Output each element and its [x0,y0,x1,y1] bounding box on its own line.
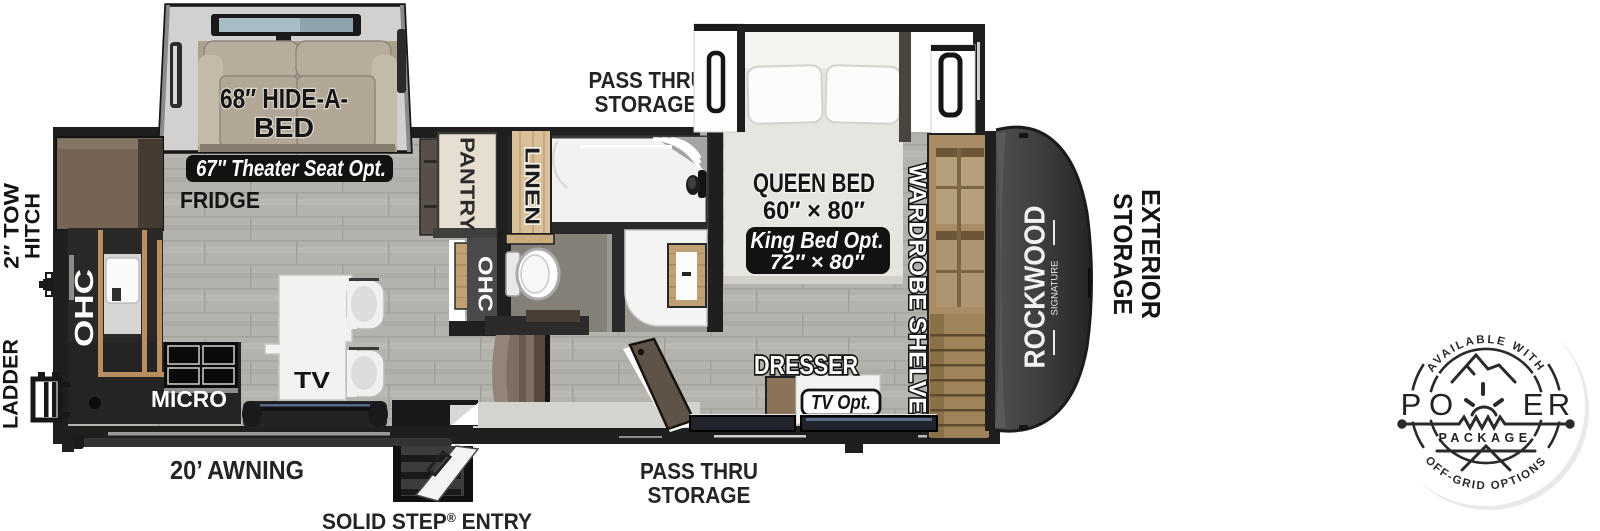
svg-text:SIGNATURE: SIGNATURE [1049,261,1059,316]
svg-text:68″ HIDE-A-: 68″ HIDE-A- [220,83,348,114]
svg-text:LADDER: LADDER [0,339,23,429]
svg-text:72″ × 80″: 72″ × 80″ [770,251,865,274]
svg-text:60″ × 80″: 60″ × 80″ [763,197,865,225]
svg-text:R: R [1548,387,1570,422]
svg-text:DRESSER: DRESSER [754,350,858,380]
svg-text:OHC: OHC [474,256,496,312]
svg-text:QUEEN BED: QUEEN BED [753,168,875,198]
svg-text:2″ TOW: 2″ TOW [1,183,24,269]
svg-text:PANTRY: PANTRY [456,137,478,232]
svg-text:20’ AWNING: 20’ AWNING [170,455,304,485]
svg-text:HITCH: HITCH [22,193,45,259]
svg-text:BED: BED [254,112,314,143]
svg-text:King Bed Opt.: King Bed Opt. [751,227,884,253]
svg-text:PASS THRU: PASS THRU [640,458,758,484]
svg-text:STORAGE: STORAGE [595,91,698,117]
svg-text:P: P [1401,387,1422,422]
svg-text:FRIDGE: FRIDGE [180,187,260,213]
svg-text:WARDROBE SHELVES: WARDROBE SHELVES [904,164,931,430]
svg-text:MICRO: MICRO [151,386,227,412]
svg-text:O: O [1429,387,1453,422]
svg-text:SOLID STEP® ENTRY: SOLID STEP® ENTRY [322,509,532,531]
svg-text:TV Opt.: TV Opt. [811,392,871,414]
svg-text:LINEN: LINEN [521,147,543,225]
svg-text:ROCKWOOD: ROCKWOOD [1020,206,1052,369]
svg-text:STORAGE: STORAGE [648,482,751,508]
svg-text:E: E [1523,387,1544,422]
svg-text:OHC: OHC [69,269,99,347]
svg-text:PASS THRU: PASS THRU [589,67,706,93]
svg-text:TV: TV [294,367,331,393]
svg-text:EXTERIOR: EXTERIOR [1136,189,1166,319]
svg-text:STORAGE: STORAGE [1108,193,1138,315]
svg-text:67″ Theater Seat Opt.: 67″ Theater Seat Opt. [196,155,386,181]
svg-text:PACKAGE: PACKAGE [1438,431,1531,445]
